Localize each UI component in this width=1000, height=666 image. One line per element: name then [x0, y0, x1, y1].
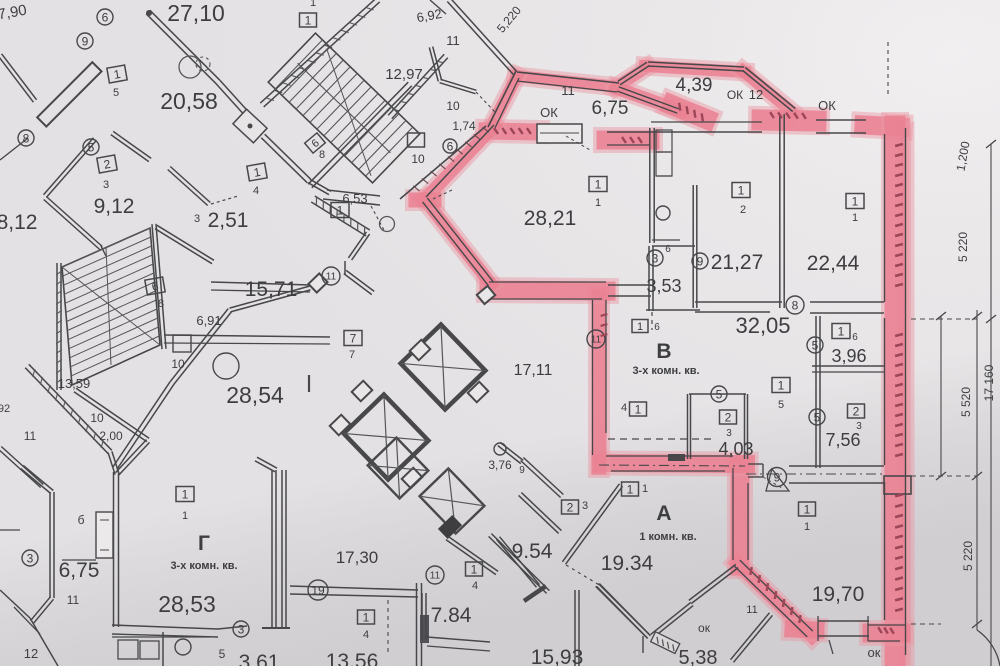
svg-text:5: 5 [88, 140, 95, 154]
svg-text:3: 3 [103, 179, 109, 191]
svg-text:1: 1 [838, 324, 845, 338]
svg-text:10: 10 [411, 152, 425, 166]
svg-text:11: 11 [67, 593, 80, 607]
svg-text:3,76: 3,76 [488, 458, 512, 472]
svg-text:1: 1 [852, 194, 859, 208]
svg-text:8: 8 [23, 131, 30, 145]
svg-text:ОК: ОК [818, 98, 836, 113]
svg-text:5: 5 [778, 399, 784, 411]
svg-text:15,93: 15,93 [531, 646, 584, 666]
svg-text:5 520: 5 520 [959, 387, 973, 417]
svg-text:6,91: 6,91 [196, 313, 221, 328]
svg-text:А: А [656, 502, 671, 525]
svg-text:3-х комн. кв.: 3-х комн. кв. [170, 560, 237, 572]
svg-text:28,53: 28,53 [158, 591, 216, 617]
svg-text:11: 11 [326, 272, 337, 283]
svg-text:15,71: 15,71 [245, 278, 298, 301]
svg-text:6,53: 6,53 [342, 191, 367, 206]
svg-text:17,30: 17,30 [336, 548, 379, 567]
svg-text:6,75: 6,75 [592, 98, 629, 119]
svg-text:6: 6 [852, 332, 858, 343]
svg-text:17,11: 17,11 [514, 362, 553, 379]
svg-text:6,75: 6,75 [59, 559, 100, 582]
svg-text:4,39: 4,39 [676, 75, 713, 96]
svg-text:2,00: 2,00 [99, 429, 123, 443]
svg-text:1 комн. кв.: 1 комн. кв. [639, 531, 696, 543]
svg-text:2: 2 [853, 404, 860, 418]
svg-text:б: б [78, 513, 85, 527]
svg-text:1: 1 [305, 13, 312, 27]
svg-text:1: 1 [627, 482, 634, 496]
svg-text:28,21: 28,21 [524, 207, 577, 230]
svg-text:8: 8 [158, 298, 164, 310]
svg-text:5: 5 [716, 387, 723, 401]
svg-text:1: 1 [778, 378, 785, 392]
svg-text:6: 6 [665, 244, 671, 255]
svg-text:7,56: 7,56 [825, 430, 860, 450]
svg-text:3: 3 [856, 421, 862, 432]
svg-text:1: 1 [738, 183, 745, 197]
svg-text:3,61: 3,61 [239, 651, 280, 666]
svg-text:4: 4 [621, 402, 627, 414]
svg-text:1,74: 1,74 [452, 119, 476, 133]
svg-text:20,58: 20,58 [160, 88, 218, 114]
svg-text:11: 11 [746, 604, 757, 616]
svg-text:ок: ок [868, 645, 881, 660]
svg-text:10: 10 [446, 99, 460, 113]
svg-text:12: 12 [749, 87, 763, 102]
svg-text:19.34: 19.34 [601, 552, 654, 575]
svg-text:19,70: 19,70 [812, 583, 865, 606]
svg-text:6: 6 [447, 139, 454, 153]
svg-text:1: 1 [642, 483, 648, 495]
svg-text:5: 5 [814, 410, 821, 424]
svg-text:1: 1 [182, 510, 188, 522]
svg-text:1: 1 [310, 0, 316, 9]
svg-text:11: 11 [446, 33, 460, 48]
svg-text:1: 1 [804, 502, 811, 516]
svg-text:9.54: 9.54 [512, 540, 553, 563]
svg-text:9: 9 [697, 254, 704, 268]
svg-text:1: 1 [637, 321, 643, 333]
svg-text:10: 10 [90, 411, 104, 425]
svg-text:2,51: 2,51 [208, 209, 249, 232]
svg-text:1: 1 [595, 177, 602, 191]
svg-text:22,44: 22,44 [807, 252, 860, 275]
svg-text:10: 10 [171, 357, 185, 371]
svg-text:5: 5 [812, 338, 819, 352]
svg-text:1: 1 [595, 197, 601, 209]
svg-text:3: 3 [27, 551, 34, 565]
svg-text:6: 6 [654, 322, 660, 333]
svg-text:3: 3 [238, 622, 245, 636]
svg-text:12,97: 12,97 [385, 66, 423, 83]
svg-text:7.84: 7.84 [431, 604, 472, 627]
svg-text:21,27: 21,27 [711, 251, 764, 274]
svg-text:9,12: 9,12 [94, 195, 135, 218]
svg-text:7: 7 [349, 349, 355, 361]
svg-text:13,59: 13,59 [58, 376, 91, 391]
svg-text:1: 1 [635, 402, 642, 416]
svg-text:2: 2 [567, 500, 574, 514]
svg-text:3: 3 [652, 251, 659, 265]
svg-text:5 220: 5 220 [961, 541, 975, 571]
svg-text:6: 6 [102, 10, 109, 24]
svg-text:32,05: 32,05 [735, 313, 790, 338]
svg-text:9: 9 [519, 465, 525, 476]
svg-text:11: 11 [591, 335, 602, 346]
svg-text:1: 1 [337, 203, 344, 217]
svg-text:2: 2 [740, 204, 746, 216]
svg-text:В: В [656, 340, 671, 363]
svg-text:8,12: 8,12 [0, 211, 37, 234]
svg-text:11: 11 [561, 83, 575, 98]
svg-text:3: 3 [582, 500, 588, 512]
svg-text:5: 5 [219, 647, 226, 661]
svg-text:11: 11 [430, 571, 441, 582]
svg-text:8: 8 [792, 298, 799, 312]
svg-text:4: 4 [363, 629, 369, 641]
svg-text:4,03: 4,03 [718, 439, 753, 459]
svg-text:ок: ок [698, 621, 711, 635]
svg-text:5,38: 5,38 [679, 647, 718, 666]
svg-text:28,54: 28,54 [226, 382, 284, 408]
svg-text:3,96: 3,96 [831, 346, 866, 366]
svg-text:8: 8 [319, 149, 325, 161]
svg-text:4: 4 [253, 185, 259, 197]
svg-text:92: 92 [0, 403, 10, 415]
svg-text:4: 4 [472, 580, 478, 592]
svg-text:1: 1 [852, 212, 858, 224]
svg-text:ОК: ОК [540, 105, 558, 120]
svg-text:3,53: 3,53 [646, 276, 681, 296]
svg-text:13,56: 13,56 [326, 650, 379, 666]
svg-text:12: 12 [24, 646, 38, 661]
svg-text:5 220: 5 220 [956, 232, 970, 262]
svg-text:27,10: 27,10 [167, 0, 225, 26]
svg-text:9: 9 [82, 34, 89, 48]
svg-text:2: 2 [725, 410, 732, 424]
svg-text:7: 7 [350, 331, 357, 345]
svg-text:1: 1 [182, 487, 189, 501]
svg-text:3: 3 [726, 428, 732, 439]
svg-text:1: 1 [363, 610, 370, 624]
svg-text:Г: Г [198, 532, 210, 555]
svg-text:1: 1 [804, 521, 810, 533]
svg-text:3-х комн. кв.: 3-х комн. кв. [632, 365, 699, 377]
svg-text:5: 5 [113, 87, 119, 99]
svg-text:17 160: 17 160 [982, 364, 996, 401]
svg-text:3: 3 [194, 213, 200, 225]
svg-text:11: 11 [24, 429, 37, 443]
svg-text:ОК: ОК [727, 88, 743, 102]
svg-text:19: 19 [311, 583, 325, 597]
svg-text:1: 1 [471, 562, 478, 576]
